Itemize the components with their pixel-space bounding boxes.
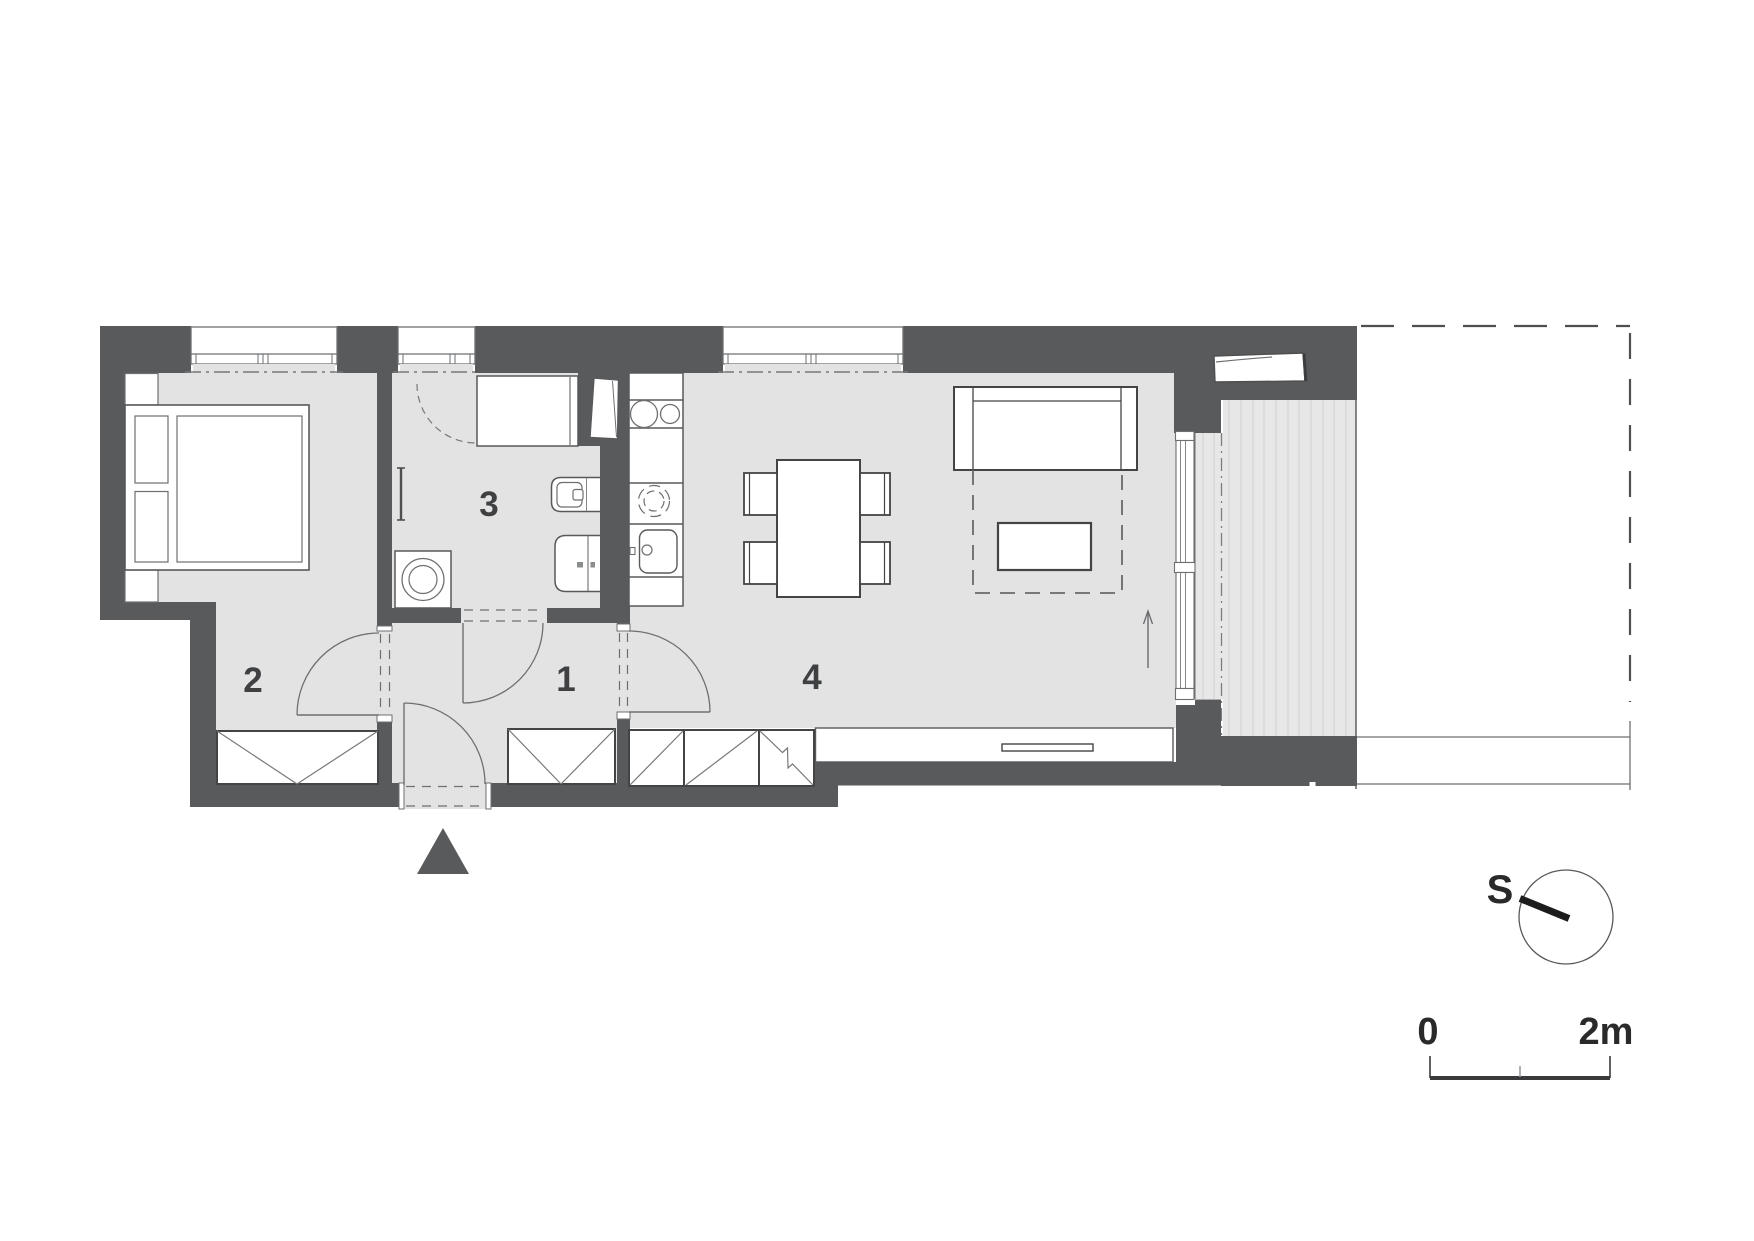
svg-text:4: 4 (802, 658, 822, 697)
svg-text:0: 0 (1417, 1011, 1438, 1053)
svg-text:1: 1 (556, 660, 575, 699)
svg-text:S: S (1487, 868, 1514, 912)
svg-text:2: 2 (243, 661, 262, 700)
svg-text:3: 3 (479, 485, 498, 524)
svg-text:2m: 2m (1579, 1011, 1634, 1053)
